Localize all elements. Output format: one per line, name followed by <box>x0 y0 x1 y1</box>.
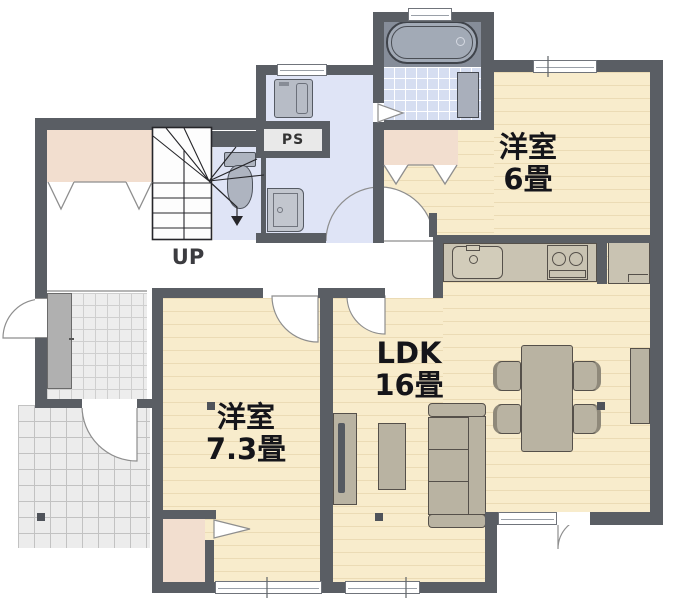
room-label-western6: 洋室 6畳 <box>458 131 598 196</box>
floor-plan: PS <box>0 0 696 611</box>
room-size: 6畳 <box>458 163 598 195</box>
closet-door-marks <box>48 165 457 209</box>
stairs-up-label: UP <box>156 246 220 270</box>
room-size: 16畳 <box>348 369 470 401</box>
room-name: 洋室 <box>176 401 316 433</box>
stairs-direction-arrow <box>231 216 243 226</box>
stairs <box>153 128 265 240</box>
room-label-western73: 洋室 7.3畳 <box>176 401 316 466</box>
bath-folding-door <box>378 104 403 122</box>
plan-lines-layer <box>0 0 696 611</box>
room-name: LDK <box>348 337 470 369</box>
room-name: 洋室 <box>458 131 598 163</box>
room-size: 7.3畳 <box>176 433 316 465</box>
closet-door-swing <box>214 520 250 538</box>
room-label-ldk: LDK 16畳 <box>348 337 470 402</box>
